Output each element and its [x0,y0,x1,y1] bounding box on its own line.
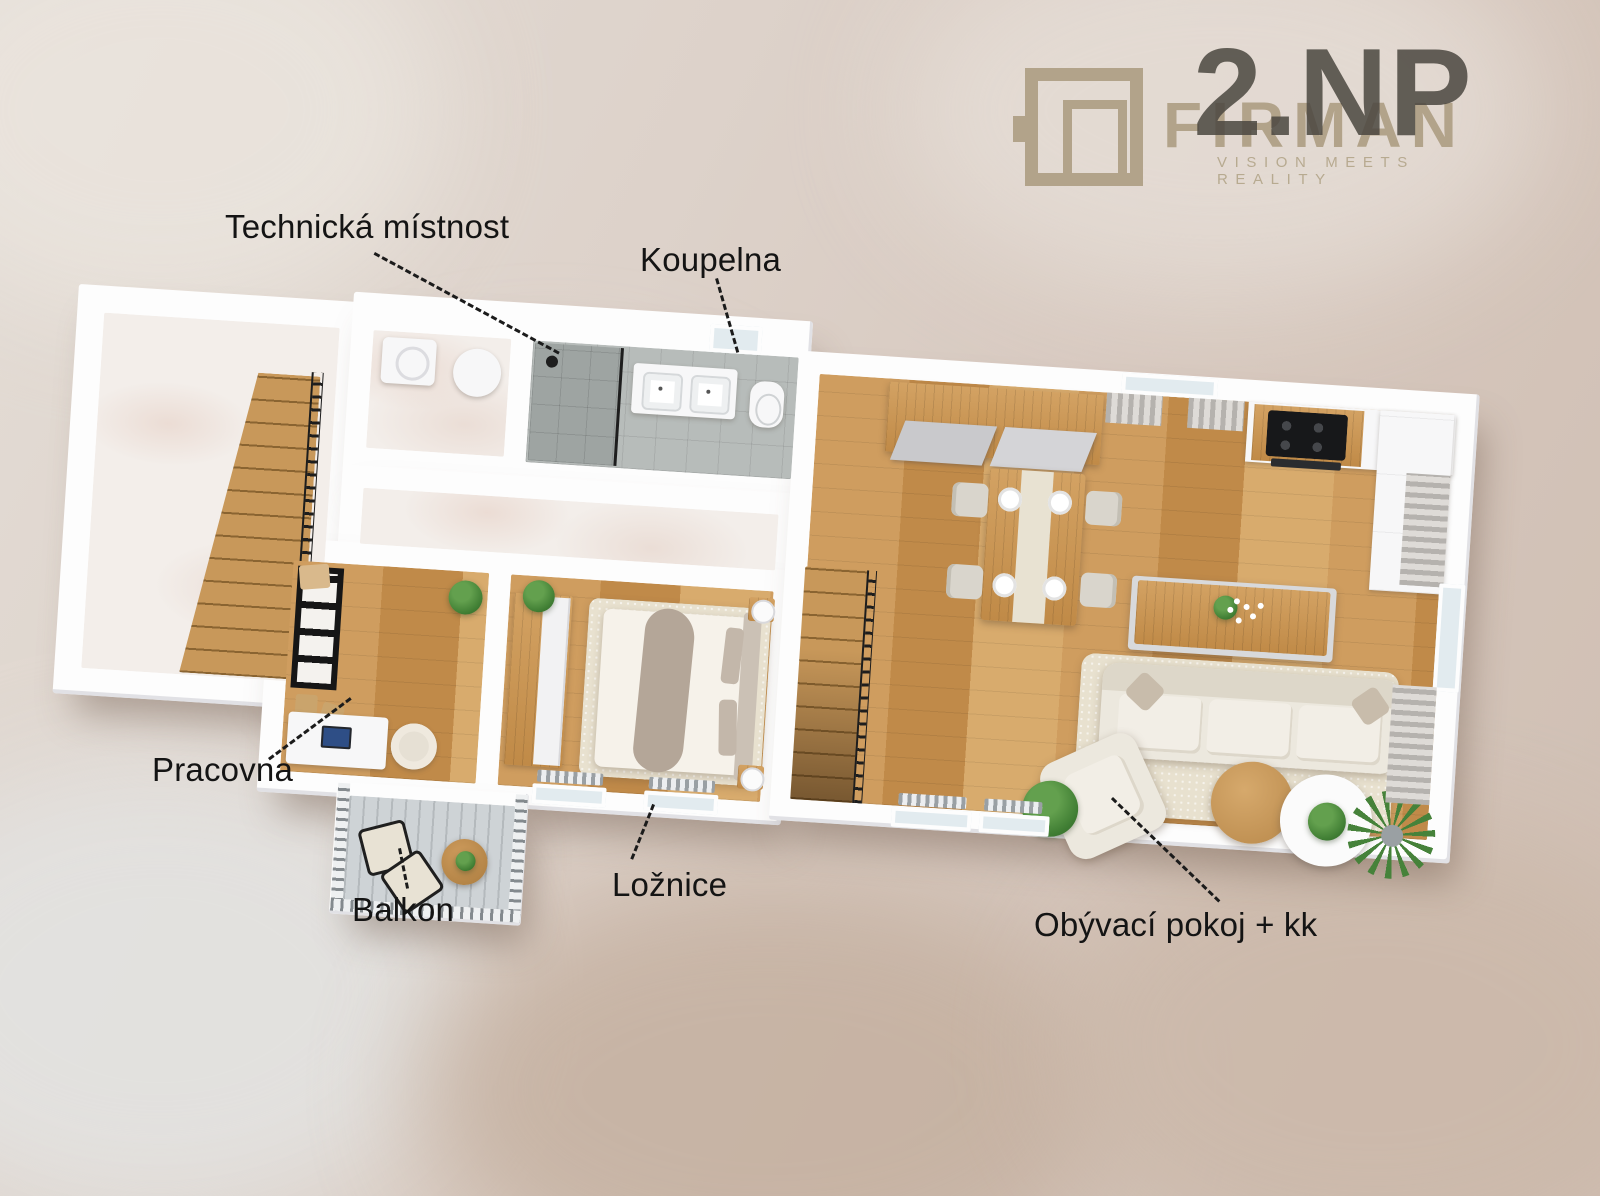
room-label-technicka-mistnost: Technická místnost [225,208,509,246]
sink [689,375,731,416]
sofa-cushion [1206,699,1293,760]
firman-logo-icon-inner [1063,100,1127,184]
logo-block: FIRMAN VISION MEETS REALITY 2.NP [1005,40,1525,200]
wardrobe-sliding-panel [890,421,997,466]
cooktop [1265,410,1348,461]
room-label-koupelna: Koupelna [640,241,781,279]
room-label-balkon: Balkon [352,891,454,929]
dining-chair [951,482,989,518]
curtain [1187,398,1245,432]
dining-chair [1085,490,1123,526]
curtain [1385,685,1437,806]
laptop [321,726,352,750]
sink [641,372,683,413]
floorplan-scene: Technická místnost Koupelna Pracovna Bal… [0,0,1600,1196]
dining-chair [1079,572,1117,608]
wardrobe-sliding-panel [990,427,1097,472]
dining-chair [946,564,984,600]
curtain [1105,393,1163,427]
floor-badge: 2.NP [1193,22,1473,164]
pillow [718,700,737,756]
storage-box [299,564,331,590]
room-label-obyvaci-pokoj: Obývací pokoj + kk [1034,906,1317,944]
shower [528,342,623,465]
curtain [1399,473,1450,588]
room-label-pracovna: Pracovna [152,751,293,789]
firman-logo-tab [1013,116,1027,142]
island-wood-top [1134,580,1331,656]
room-label-loznice: Ložnice [612,866,727,904]
